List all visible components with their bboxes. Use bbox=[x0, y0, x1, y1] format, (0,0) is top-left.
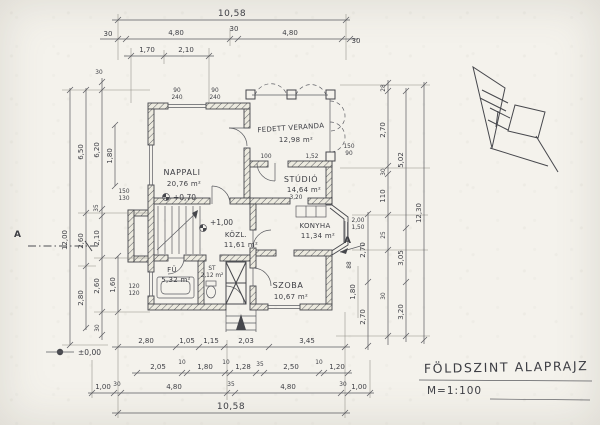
ann-win-top2-a: 90 bbox=[211, 88, 219, 94]
dim-right-c3-4: 110 bbox=[379, 189, 387, 202]
ann-door-studio: 1,52 bbox=[306, 154, 319, 160]
room-kamra-name: ST bbox=[208, 266, 216, 272]
dim-bot-r3-7: 1,00 bbox=[351, 383, 367, 391]
dim-bot-r2-3: 1,80 bbox=[197, 363, 213, 371]
dim-right-near4: 88 bbox=[347, 261, 353, 269]
dim-left-c3-5: 2,60 bbox=[93, 278, 101, 294]
dim-bot-r3-1: 1,00 bbox=[95, 383, 111, 391]
level-nappali: +0,70 bbox=[173, 193, 196, 202]
dim-top-seg5: 30 bbox=[352, 37, 361, 45]
left-bay-porch bbox=[128, 210, 148, 262]
dim-left-c3-4: 2,10 bbox=[93, 230, 101, 246]
kitchen-counter bbox=[296, 206, 326, 217]
level-terrain: ±0,00 bbox=[78, 348, 101, 357]
dim-right-near2: 2,70 bbox=[359, 309, 367, 325]
section-left-label: A bbox=[14, 230, 21, 240]
dim-left-c2-3: 2,80 bbox=[77, 290, 85, 306]
dim-left-c2-1: 6,50 bbox=[77, 144, 85, 160]
room-studio-dim: 3,20 bbox=[290, 195, 303, 201]
dim-right-total: 12,30 bbox=[415, 203, 423, 223]
dim-bot-r2-1: 2,05 bbox=[150, 363, 166, 371]
dim-bot-r1-3: 1,15 bbox=[203, 337, 219, 345]
ann-win-top1-a: 90 bbox=[173, 88, 181, 94]
dim-top-sub2: 2,10 bbox=[178, 46, 194, 54]
dim-top-sub1: 1,70 bbox=[139, 46, 155, 54]
floor-plan-drawing: 10,58 30 4,80 30 4,80 30 1,70 2,10 bbox=[0, 0, 600, 425]
dim-bot-r1-4: 2,03 bbox=[238, 337, 254, 345]
ann-win-top2-b: 240 bbox=[209, 95, 220, 101]
dim-bot-r2-4: 10 bbox=[222, 360, 230, 366]
room-szoba-name: SZOBA bbox=[273, 281, 304, 290]
dim-right-c3-1: 28 bbox=[381, 84, 387, 92]
ann-win-left1-a: 150 bbox=[118, 189, 129, 195]
dim-left-c2-2: 2,60 bbox=[77, 233, 85, 249]
dim-top-seg2: 4,80 bbox=[168, 29, 184, 37]
veranda-structure bbox=[246, 84, 345, 161]
drawing-title: FÖLDSZINT ALAPRAJZ bbox=[424, 357, 589, 376]
room-konyha-name: KONYHA bbox=[299, 222, 330, 230]
dim-bot-r2-7: 2,50 bbox=[283, 363, 299, 371]
room-furdo-name: FÜ bbox=[167, 265, 177, 274]
dim-bottom-total: 10,58 bbox=[217, 402, 245, 412]
ann-win-right1-a: 2,00 bbox=[352, 218, 365, 224]
room-konyha-area: 11,34 m² bbox=[301, 232, 335, 240]
section-marker-left: A bbox=[14, 230, 100, 251]
dim-left-c3-6: 30 bbox=[95, 324, 101, 332]
entrance-steps bbox=[226, 310, 256, 332]
dim-top-total: 10,58 bbox=[218, 9, 246, 19]
room-nappali-name: NAPPALI bbox=[163, 168, 200, 177]
ann-win-left2-a: 120 bbox=[128, 284, 139, 290]
room-nappali-area: 20,76 m² bbox=[167, 180, 201, 188]
ann-win-right1-b: 1,50 bbox=[352, 225, 365, 231]
dim-right-c2-3: 3,20 bbox=[397, 304, 405, 320]
ann-win-ver1-b: 90 bbox=[345, 151, 353, 157]
dim-left-c3-1: 30 bbox=[95, 70, 103, 76]
dim-bot-r2-6: 35 bbox=[256, 362, 264, 368]
dim-left-c3-2: 6,20 bbox=[93, 142, 101, 158]
dim-bot-r3-2: 30 bbox=[113, 382, 121, 388]
floor-plan-sheet: 10,58 30 4,80 30 4,80 30 1,70 2,10 bbox=[0, 0, 600, 425]
dim-top-seg3: 30 bbox=[230, 25, 239, 33]
dim-chain-right: 28 2,70 30 110 25 30 5,02 3,05 3,20 12,3… bbox=[336, 80, 430, 350]
title-block: FÖLDSZINT ALAPRAJZ M=1:100 bbox=[419, 357, 592, 400]
dim-bot-r1-2: 1,05 bbox=[179, 337, 195, 345]
drawing-scale: M=1:100 bbox=[427, 385, 482, 397]
room-furdo-area: 5,32 m² bbox=[161, 276, 191, 284]
dim-chain-left: 12,00 6,50 2,60 2,80 30 6,20 35 2,10 2,6… bbox=[61, 70, 150, 348]
dim-right-c3-6: 30 bbox=[381, 292, 387, 300]
room-studio-area: 14,64 m² bbox=[287, 186, 321, 194]
dim-left-total: 12,00 bbox=[61, 230, 69, 250]
dim-top-seg4: 4,80 bbox=[282, 29, 298, 37]
entry-arrow-icon bbox=[236, 314, 246, 330]
dim-left-near1: 1,80 bbox=[106, 148, 114, 164]
level-kozl: +1,00 bbox=[210, 218, 233, 227]
dim-top-seg1: 30 bbox=[104, 30, 113, 38]
dim-right-c2-1: 5,02 bbox=[397, 152, 405, 168]
stairs bbox=[157, 206, 200, 254]
dim-right-c2-2: 3,05 bbox=[397, 250, 405, 266]
dim-bot-r2-8: 10 bbox=[315, 360, 323, 366]
room-veranda-area: 12,98 m² bbox=[279, 136, 313, 144]
dim-bot-r2-9: 1,20 bbox=[329, 363, 345, 371]
dim-bot-r3-3: 4,80 bbox=[166, 383, 182, 391]
ann-win-top1-b: 240 bbox=[171, 95, 182, 101]
dim-bot-r3-4: 35 bbox=[227, 382, 235, 388]
ann-ver-dim: 100 bbox=[260, 154, 271, 160]
dim-left-near2: 1,60 bbox=[109, 277, 117, 293]
dim-right-c3-5: 25 bbox=[381, 231, 387, 239]
ann-win-left1-b: 130 bbox=[118, 196, 129, 202]
wc-fixture bbox=[206, 281, 216, 298]
shaft bbox=[226, 262, 246, 304]
dim-right-near1: 2,70 bbox=[359, 242, 367, 258]
dim-chain-bottom: 2,80 1,05 1,15 2,03 3,45 2,05 10 1,80 10… bbox=[88, 312, 374, 418]
dim-right-near3: 1,80 bbox=[349, 284, 357, 300]
room-kamra-area: 2,12 m² bbox=[201, 272, 224, 279]
section-right-label: A bbox=[344, 236, 351, 246]
dim-bot-r3-5: 4,80 bbox=[280, 383, 296, 391]
room-szoba-area: 10,67 m² bbox=[274, 293, 308, 301]
room-kozl-area: 11,61 m² bbox=[224, 241, 258, 249]
dim-bot-r3-6: 30 bbox=[339, 382, 347, 388]
room-kozl-name: KÖZL. bbox=[225, 230, 247, 239]
room-veranda-name: FEDETT VERANDA bbox=[257, 122, 324, 135]
dim-right-c3-3: 30 bbox=[381, 168, 387, 176]
ann-win-left2-b: 120 bbox=[128, 291, 139, 297]
dim-bot-r1-1: 2,80 bbox=[138, 337, 154, 345]
dim-bot-r2-5: 1,28 bbox=[235, 363, 251, 371]
dim-right-c3-2: 2,70 bbox=[379, 122, 387, 138]
ann-win-ver1-a: 150 bbox=[343, 144, 354, 150]
room-studio-name: STÚDIÓ bbox=[284, 173, 318, 184]
dim-bot-r1-5: 3,45 bbox=[299, 337, 315, 345]
dim-chain-top: 10,58 30 4,80 30 4,80 30 1,70 2,10 bbox=[100, 9, 360, 103]
north-arrow-icon bbox=[473, 67, 558, 172]
dim-left-c3-3: 35 bbox=[94, 204, 100, 212]
dim-bot-r2-2: 10 bbox=[178, 360, 186, 366]
